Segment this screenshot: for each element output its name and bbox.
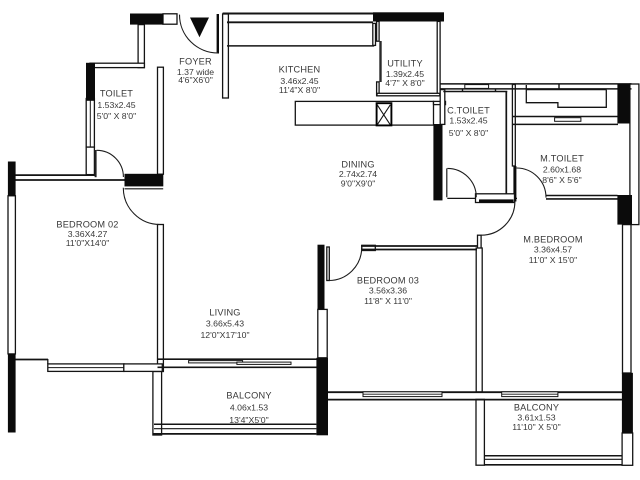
svg-text:11'10" X 5'0": 11'10" X 5'0" <box>512 422 560 432</box>
svg-text:BALCONY: BALCONY <box>226 391 271 401</box>
svg-text:11'0"X14'0": 11'0"X14'0" <box>66 238 110 248</box>
svg-text:1.53x2.45: 1.53x2.45 <box>97 100 135 110</box>
svg-text:M.BEDROOM: M.BEDROOM <box>523 235 582 245</box>
svg-text:9'0"X9'0": 9'0"X9'0" <box>341 179 376 189</box>
svg-text:5'0" X 8'0": 5'0" X 8'0" <box>97 111 136 121</box>
svg-text:4'6"X6'0": 4'6"X6'0" <box>178 75 213 85</box>
svg-text:3.56x3.36: 3.56x3.36 <box>369 286 407 296</box>
svg-text:2.60x1.68: 2.60x1.68 <box>543 164 581 174</box>
svg-text:M.TOILET: M.TOILET <box>540 154 584 164</box>
svg-text:2.74x2.74: 2.74x2.74 <box>339 169 377 179</box>
svg-text:11'4"X 8'0": 11'4"X 8'0" <box>279 85 320 95</box>
svg-text:1.53x2.45: 1.53x2.45 <box>449 116 487 126</box>
svg-text:3.66x5.43: 3.66x5.43 <box>206 319 244 329</box>
svg-text:3.36x4.57: 3.36x4.57 <box>534 245 572 255</box>
svg-text:TOILET: TOILET <box>100 89 133 99</box>
svg-text:11'0" X 15'0": 11'0" X 15'0" <box>529 255 577 265</box>
svg-text:KITCHEN: KITCHEN <box>279 65 321 75</box>
svg-text:UTILITY: UTILITY <box>387 59 423 69</box>
svg-text:8'6" X 5'6": 8'6" X 5'6" <box>542 175 581 185</box>
svg-text:BEDROOM 02: BEDROOM 02 <box>56 220 118 230</box>
svg-text:12'0"X17'10": 12'0"X17'10" <box>200 330 249 340</box>
svg-text:C.TOILET: C.TOILET <box>447 106 490 116</box>
svg-text:FOYER: FOYER <box>179 57 212 67</box>
svg-text:5'0" X 8'0": 5'0" X 8'0" <box>449 128 488 138</box>
svg-text:BALCONY: BALCONY <box>514 403 559 413</box>
svg-text:4'7" X 8'0": 4'7" X 8'0" <box>385 78 424 88</box>
svg-text:4.06x1.53: 4.06x1.53 <box>230 403 268 413</box>
svg-text:LIVING: LIVING <box>209 308 240 318</box>
svg-text:3.61x1.53: 3.61x1.53 <box>517 413 555 423</box>
svg-text:BEDROOM 03: BEDROOM 03 <box>357 276 419 286</box>
svg-text:13'4"X5'0": 13'4"X5'0" <box>229 415 268 425</box>
svg-text:11'8" X 11'0": 11'8" X 11'0" <box>364 296 412 306</box>
